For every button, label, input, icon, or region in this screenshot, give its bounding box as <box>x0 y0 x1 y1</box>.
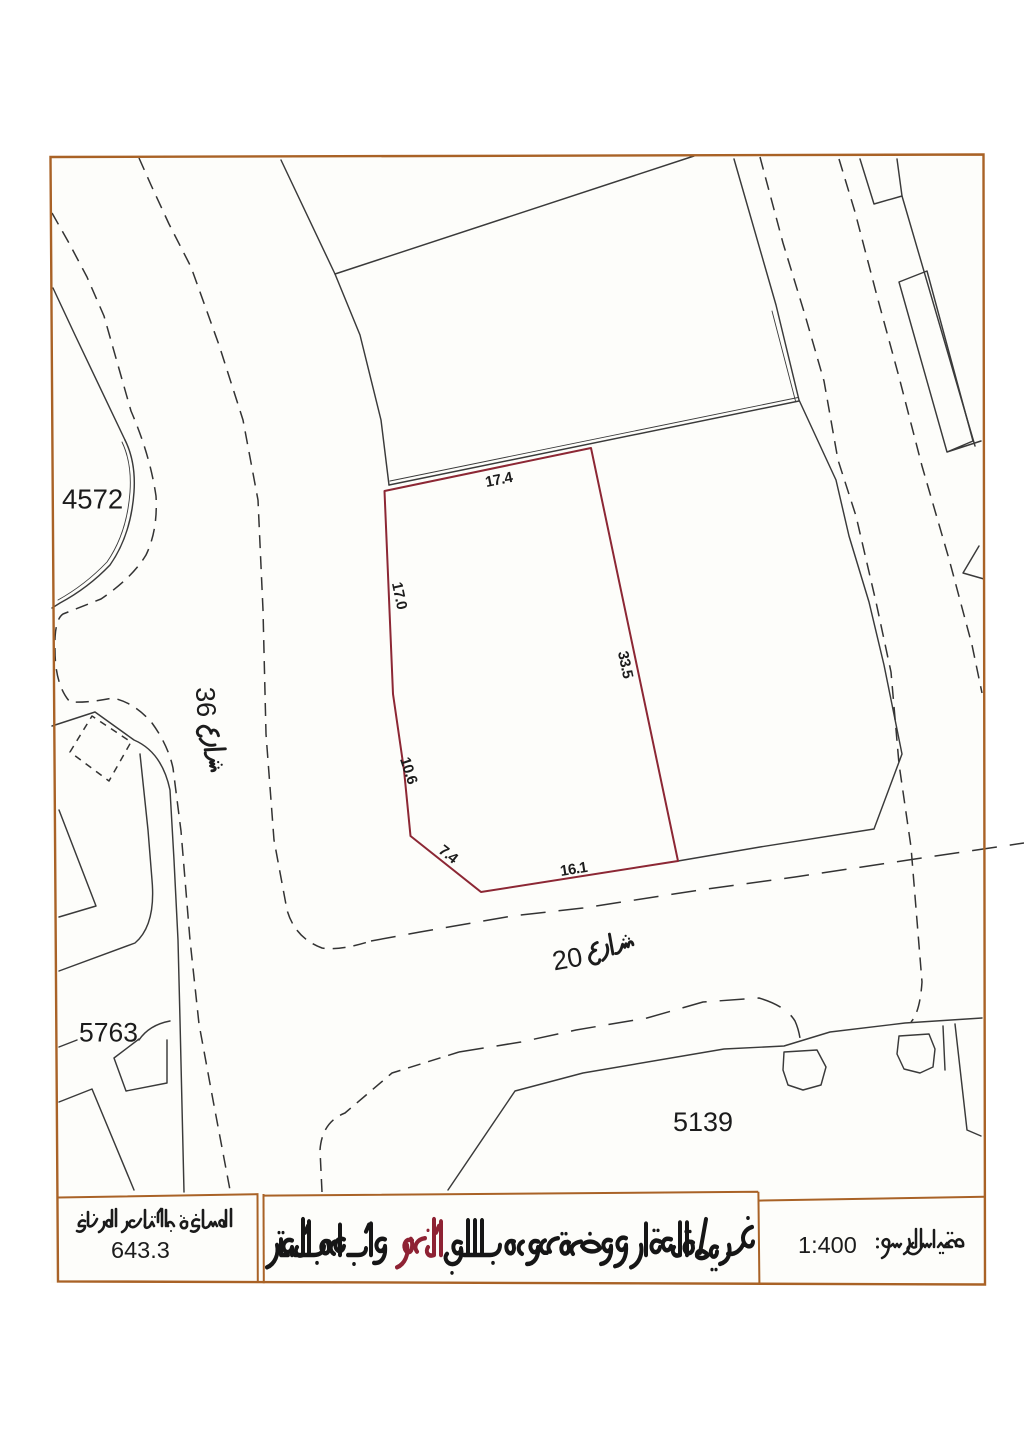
svg-text:1:400: 1:400 <box>798 1232 857 1258</box>
svg-text:643.3: 643.3 <box>111 1237 170 1263</box>
svg-text:36: 36 <box>190 686 222 718</box>
svg-text:5139: 5139 <box>673 1107 733 1137</box>
svg-text:5763: 5763 <box>79 1018 138 1048</box>
svg-text:20: 20 <box>550 942 585 977</box>
svg-text:4572: 4572 <box>62 484 123 515</box>
